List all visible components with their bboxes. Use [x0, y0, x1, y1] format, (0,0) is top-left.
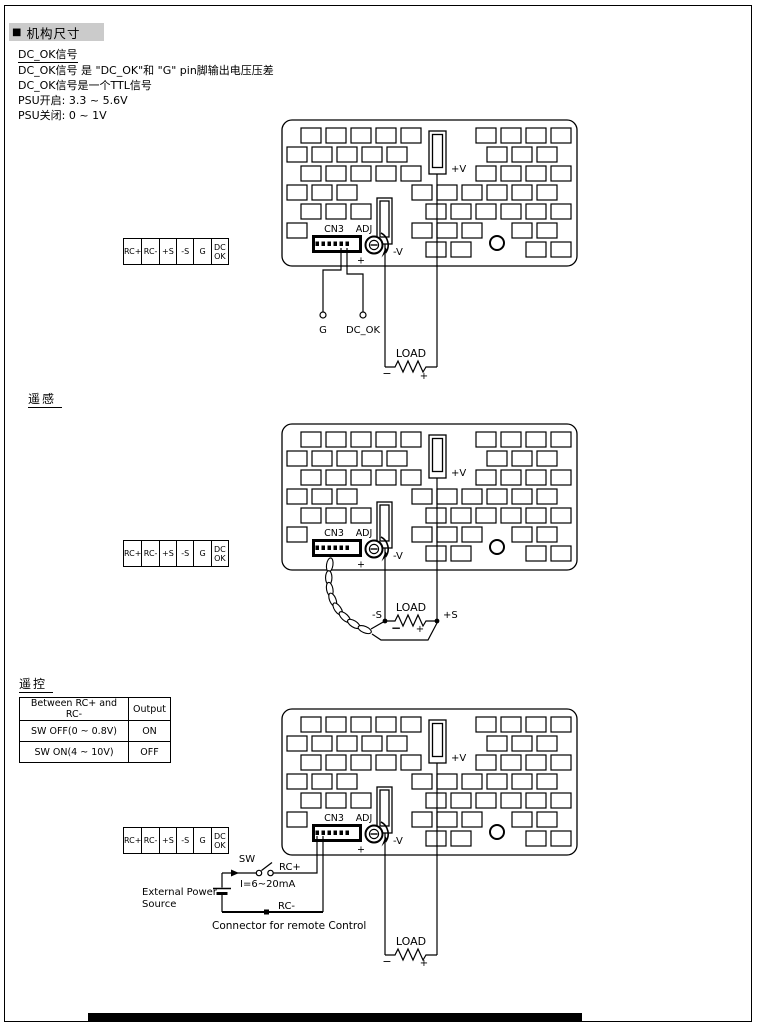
load-label: LOAD	[396, 347, 426, 360]
dc-ok-terminal	[360, 312, 366, 318]
plus-s-node	[435, 619, 440, 624]
cn3-label: CN3	[324, 224, 344, 235]
sw-switch	[256, 863, 273, 876]
load-plus-label: +	[420, 958, 428, 969]
psu-board	[282, 709, 577, 856]
psu-board	[282, 424, 577, 571]
plus-v-terminal	[429, 131, 446, 174]
adj-label: ADJ	[356, 224, 373, 235]
wiring-diagrams: +V -V CN3 ADJ	[0, 0, 757, 1028]
load-minus-label: −	[382, 367, 391, 380]
minus-s-label: -S	[372, 610, 382, 621]
plus-s-label: +S	[443, 610, 458, 621]
load-plus-label: +	[420, 371, 428, 382]
datasheet-page: ■ 机构尺寸 DC_OK信号 DC_OK信号 是 "DC_OK"和 "G" pi…	[0, 0, 757, 1028]
diagram-remote-control-wiring: LOAD − + SW RC+ I=6~20mA Extern	[142, 763, 437, 969]
sense-wire-plus	[372, 623, 437, 640]
twisted-pair-wire	[325, 557, 372, 635]
sense-wire-minus	[371, 621, 385, 629]
current-label: I=6~20mA	[240, 879, 296, 890]
load-resistor	[385, 361, 437, 372]
external-power-label-line1: External Power	[142, 887, 218, 898]
rc-plus-label: RC+	[279, 862, 301, 873]
current-direction-arrow-icon	[231, 870, 239, 877]
cn3-connector	[312, 235, 362, 253]
sw-label: SW	[239, 854, 255, 865]
connector-note-label: Connector for remote Control	[212, 920, 366, 932]
load-minus-label: −	[382, 955, 391, 968]
diagram-dc-ok-wiring: LOAD − + G DC_OK	[319, 174, 437, 382]
external-power-label-line2: Source	[142, 899, 176, 910]
plus-v-label: +V	[451, 164, 466, 175]
dc-ok-label: DC_OK	[346, 325, 381, 336]
load-plus-label: +	[416, 624, 424, 635]
minus-v-label: -V	[393, 247, 403, 258]
g-terminal	[320, 312, 326, 318]
load-label: LOAD	[396, 601, 426, 614]
load-resistor	[385, 949, 437, 960]
g-label: G	[319, 325, 327, 336]
adj-plus-label: +	[357, 256, 365, 267]
rc-minus-node	[264, 910, 269, 915]
mounting-hole	[490, 236, 504, 250]
load-label: LOAD	[396, 935, 426, 948]
load-minus-label: −	[391, 621, 401, 635]
bottom-bar	[88, 1013, 582, 1022]
psu-board: +V -V CN3 ADJ	[282, 120, 577, 267]
g-wire	[323, 248, 341, 312]
rc-minus-label: RC-	[278, 901, 295, 912]
